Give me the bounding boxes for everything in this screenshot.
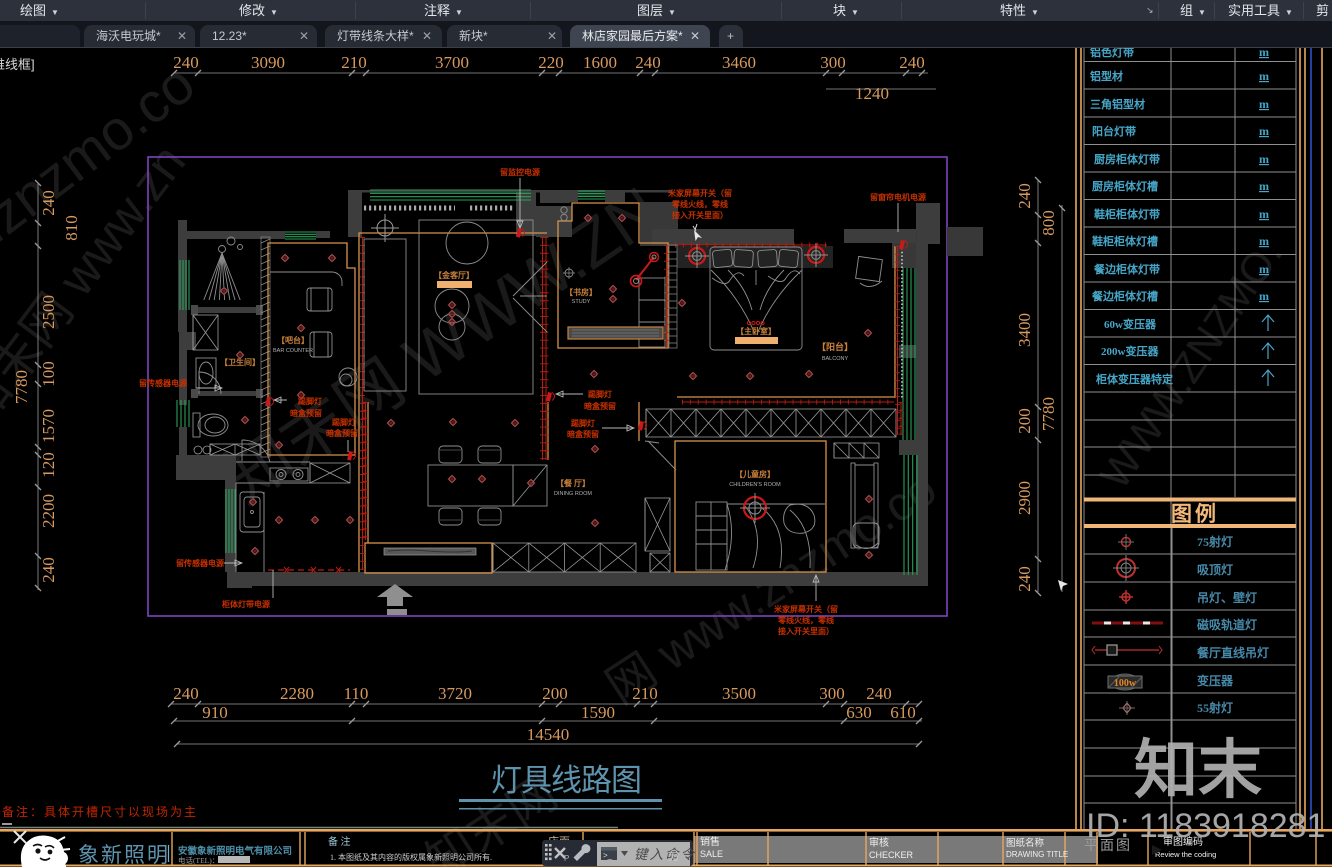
svg-text:2200: 2200 [39, 494, 58, 528]
svg-text:分: 分 [668, 849, 680, 863]
svg-text:阳台灯带: 阳台灯带 [1092, 124, 1136, 138]
svg-text:810: 810 [62, 215, 81, 241]
svg-text:餐边柜体灯带: 餐边柜体灯带 [1093, 262, 1160, 276]
svg-text:m: m [1259, 152, 1269, 166]
svg-text:m: m [1259, 207, 1269, 221]
svg-text:1. 本图纸及其内容的版权属象新照明公司所有.: 1. 本图纸及其内容的版权属象新照明公司所有. [330, 852, 492, 862]
svg-text:零线火线，零线: 零线火线，零线 [671, 199, 728, 209]
svg-text:电话(TEL)：: 电话(TEL)： [178, 855, 219, 865]
svg-text:240: 240 [899, 53, 925, 72]
svg-text:7780: 7780 [12, 370, 31, 404]
svg-text:三角铝型材: 三角铝型材 [1090, 97, 1145, 111]
svg-text:800: 800 [1039, 210, 1058, 236]
svg-text:3500: 3500 [722, 684, 756, 703]
svg-text:60w变压器: 60w变压器 [1104, 317, 1157, 331]
svg-text:【书房】: 【书房】 [565, 287, 597, 297]
svg-text:变压器: 变压器 [1197, 673, 1234, 688]
svg-text:240: 240 [39, 557, 58, 583]
svg-text:3700: 3700 [435, 53, 469, 72]
svg-text:m: m [1259, 289, 1269, 303]
svg-text:2280: 2280 [280, 684, 314, 703]
svg-text:米家屏幕开关（留: 米家屏幕开关（留 [667, 188, 732, 198]
svg-text:留监控电源: 留监控电源 [500, 167, 540, 177]
svg-text:审核: 审核 [869, 836, 889, 849]
svg-text:CHECKER: CHECKER [869, 850, 914, 860]
svg-text:1590: 1590 [581, 703, 615, 722]
svg-text:磁吸轨道灯: 磁吸轨道灯 [1196, 617, 1257, 632]
svg-text:240: 240 [39, 190, 58, 216]
svg-text:象新照明: 象新照明 [78, 843, 170, 867]
svg-text:【阳台】: 【阳台】 [817, 341, 853, 352]
svg-text:柜体变压器特定: 柜体变压器特定 [1095, 372, 1173, 386]
svg-text:米家屏幕开关（留: 米家屏幕开关（留 [773, 604, 838, 614]
svg-text:留传感器电源: 留传感器电源 [139, 378, 187, 388]
svg-text:接入开关里面）: 接入开关里面） [672, 210, 728, 220]
svg-text:220: 220 [538, 53, 564, 72]
svg-text:厨房柜体灯槽: 厨房柜体灯槽 [1092, 179, 1158, 193]
svg-text:210: 210 [632, 684, 658, 703]
svg-text:P: P [564, 854, 569, 863]
svg-text:知末: 知末 [1134, 734, 1262, 806]
svg-text:吊灯、壁灯: 吊灯、壁灯 [1197, 590, 1257, 605]
svg-text:3460: 3460 [722, 53, 756, 72]
svg-text:踢脚灯: 踢脚灯 [588, 389, 612, 399]
svg-text:110: 110 [344, 684, 369, 703]
svg-text:铝色灯带: 铝色灯带 [1090, 48, 1134, 59]
svg-text:暗盒预留: 暗盒预留 [290, 408, 322, 418]
svg-text:240: 240 [635, 53, 661, 72]
svg-text:销售: 销售 [700, 835, 720, 848]
svg-text:240: 240 [173, 684, 199, 703]
svg-text:暗盒预留: 暗盒预留 [584, 401, 616, 411]
svg-text:240: 240 [866, 684, 892, 703]
svg-text:240: 240 [1015, 183, 1034, 209]
svg-text:【主卧室】: 【主卧室】 [736, 326, 776, 336]
svg-text:厨房柜体灯带: 厨房柜体灯带 [1094, 152, 1160, 166]
svg-text:1570: 1570 [39, 409, 58, 443]
svg-text:55射灯: 55射灯 [1197, 700, 1233, 715]
svg-text:图纸名称: 图纸名称 [1006, 837, 1045, 849]
svg-text:200: 200 [542, 684, 568, 703]
svg-text:零线火线，零线: 零线火线，零线 [777, 615, 834, 625]
svg-text:柜体灯带电源: 柜体灯带电源 [221, 599, 270, 609]
svg-text:300: 300 [820, 53, 846, 72]
svg-text:210: 210 [341, 53, 367, 72]
svg-text:接入开关里面）: 接入开关里面） [778, 626, 834, 636]
svg-text:留传感器电源: 留传感器电源 [176, 558, 224, 568]
svg-text:BALCONY: BALCONY [822, 356, 849, 362]
svg-text:暗盒预留: 暗盒预留 [326, 428, 358, 438]
svg-text:m: m [1259, 179, 1269, 193]
svg-text:3400: 3400 [1015, 313, 1034, 347]
svg-text:踢脚灯: 踢脚灯 [332, 417, 356, 427]
svg-text:铝型材: 铝型材 [1090, 69, 1123, 83]
svg-text:1600: 1600 [583, 53, 617, 72]
svg-text:维线框]: 维线框] [0, 57, 35, 72]
svg-text:【金客厅】: 【金客厅】 [434, 270, 474, 280]
svg-text:120: 120 [39, 452, 58, 478]
svg-text:DINING ROOM: DINING ROOM [554, 491, 592, 497]
svg-text:m: m [1259, 124, 1269, 138]
svg-text:STUDY: STUDY [572, 299, 591, 305]
svg-text:踢脚灯: 踢脚灯 [298, 396, 322, 406]
svg-text:【儿童房】: 【儿童房】 [735, 469, 775, 479]
svg-text:>_: >_ [603, 851, 613, 860]
svg-text:Review the coding: Review the coding [1155, 850, 1216, 859]
svg-text:3090: 3090 [251, 53, 285, 72]
svg-text:2900: 2900 [1015, 481, 1034, 515]
svg-text:踢脚灯: 踢脚灯 [571, 418, 595, 428]
svg-text:备 注: 备 注 [328, 835, 351, 848]
svg-text:【卫生间】: 【卫生间】 [220, 357, 260, 367]
svg-text:DRAWING TITLE: DRAWING TITLE [1006, 850, 1068, 859]
svg-text:3720: 3720 [438, 684, 472, 703]
svg-text:2500: 2500 [39, 295, 58, 329]
svg-text:CHILDREN'S ROOM: CHILDREN'S ROOM [729, 482, 781, 488]
svg-text:910: 910 [202, 703, 228, 722]
svg-text:m: m [1259, 234, 1269, 248]
svg-text:键入命令: 键入命令 [634, 847, 696, 862]
svg-text:200: 200 [1015, 408, 1034, 434]
svg-text:餐边柜体灯槽: 餐边柜体灯槽 [1091, 289, 1158, 303]
svg-text:m: m [1259, 262, 1269, 276]
svg-text:240: 240 [173, 53, 199, 72]
svg-text:100: 100 [39, 361, 58, 387]
svg-text:图例: 图例 [1171, 502, 1219, 526]
svg-text:留窗帘电机电源: 留窗帘电机电源 [870, 192, 926, 202]
svg-text:m: m [1259, 97, 1269, 111]
svg-text:鞋柜柜体灯带: 鞋柜柜体灯带 [1094, 207, 1160, 221]
svg-text:灯具线路图: 灯具线路图 [491, 763, 641, 798]
svg-text:m: m [1259, 69, 1269, 83]
svg-text:餐厅直线吊灯: 餐厅直线吊灯 [1197, 645, 1269, 660]
svg-text:300: 300 [819, 684, 845, 703]
svg-text:【吧台】: 【吧台】 [277, 335, 309, 345]
svg-text:BAR COUNTER: BAR COUNTER [273, 348, 313, 354]
svg-text:1240: 1240 [855, 84, 889, 103]
svg-text:200w变压器: 200w变压器 [1101, 344, 1159, 358]
svg-text:14540: 14540 [527, 725, 570, 744]
svg-text:暗盒预留: 暗盒预留 [567, 429, 599, 439]
svg-text:SALE: SALE [700, 849, 723, 859]
svg-text:240: 240 [1015, 566, 1034, 592]
svg-text:100w: 100w [1114, 678, 1137, 689]
svg-text:吸顶灯: 吸顶灯 [1197, 562, 1233, 577]
svg-text:m: m [1259, 48, 1269, 59]
svg-text:610: 610 [890, 703, 916, 722]
svg-text:75射灯: 75射灯 [1197, 534, 1233, 549]
svg-text:鞋柜柜体灯槽: 鞋柜柜体灯槽 [1092, 234, 1158, 248]
svg-text:备注：具体开槽尺寸以现场为主: 备注：具体开槽尺寸以现场为主 [2, 804, 198, 819]
svg-text:【餐 厅】: 【餐 厅】 [556, 478, 590, 488]
svg-text:630: 630 [846, 703, 872, 722]
svg-text:ID: 1183918281: ID: 1183918281 [1086, 807, 1325, 845]
svg-text:7780: 7780 [1039, 397, 1058, 431]
